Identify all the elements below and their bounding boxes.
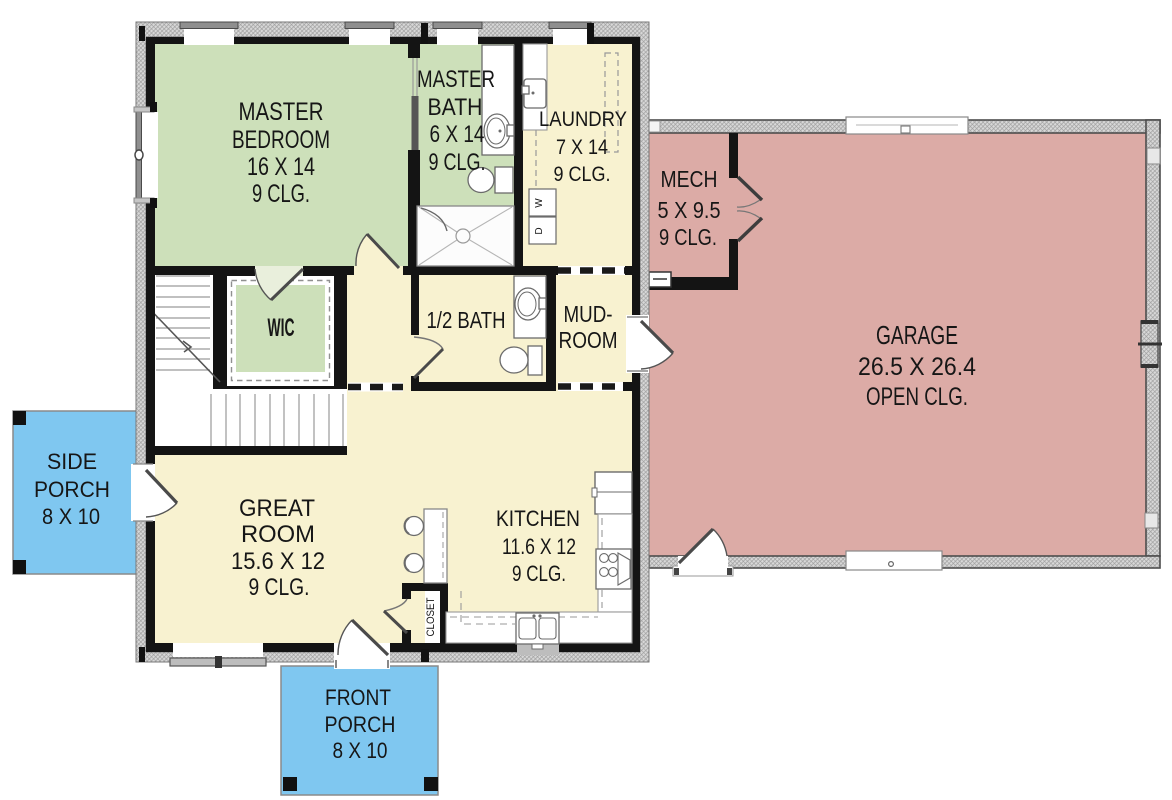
- svg-text:MASTER: MASTER: [417, 66, 495, 93]
- svg-text:9 CLG.: 9 CLG.: [252, 180, 310, 208]
- svg-text:MASTER: MASTER: [239, 98, 324, 126]
- svg-text:9 CLG.: 9 CLG.: [429, 149, 486, 176]
- svg-text:MECH: MECH: [661, 166, 718, 192]
- svg-text:SIDE: SIDE: [47, 449, 97, 474]
- svg-text:11.6 X 12: 11.6 X 12: [502, 534, 576, 559]
- svg-text:BATH: BATH: [428, 94, 483, 121]
- svg-text:7 X 14: 7 X 14: [556, 136, 608, 159]
- svg-text:D: D: [534, 227, 545, 234]
- svg-text:9 CLG.: 9 CLG.: [512, 561, 566, 586]
- svg-text:9 CLG.: 9 CLG.: [554, 163, 611, 186]
- svg-text:KITCHEN: KITCHEN: [496, 506, 580, 531]
- svg-text:6 X 14: 6 X 14: [430, 121, 485, 148]
- svg-text:5 X 9.5: 5 X 9.5: [658, 197, 721, 223]
- svg-text:PORCH: PORCH: [325, 712, 396, 737]
- svg-text:8 X 10: 8 X 10: [333, 738, 388, 763]
- svg-text:WIC: WIC: [268, 314, 295, 342]
- svg-text:ROOM: ROOM: [559, 327, 618, 353]
- svg-text:26.5 X 26.4: 26.5 X 26.4: [858, 353, 976, 381]
- svg-text:GREAT: GREAT: [239, 495, 315, 522]
- svg-text:OPEN CLG.: OPEN CLG.: [866, 383, 968, 411]
- svg-text:LAUNDRY: LAUNDRY: [539, 108, 627, 131]
- svg-text:15.6 X 12: 15.6 X 12: [231, 548, 325, 575]
- svg-text:BEDROOM: BEDROOM: [232, 126, 330, 154]
- svg-text:MUD-: MUD-: [564, 301, 613, 327]
- svg-text:1/2 BATH: 1/2 BATH: [427, 307, 506, 333]
- svg-text:W: W: [534, 198, 545, 208]
- svg-text:PORCH: PORCH: [34, 477, 110, 502]
- svg-text:9 CLG.: 9 CLG.: [249, 574, 310, 601]
- svg-text:FRONT: FRONT: [325, 685, 391, 710]
- svg-text:CLOSET: CLOSET: [425, 597, 437, 636]
- svg-text:8 X 10: 8 X 10: [42, 504, 100, 529]
- svg-text:GARAGE: GARAGE: [876, 320, 958, 350]
- svg-text:9 CLG.: 9 CLG.: [659, 224, 717, 250]
- svg-text:ROOM: ROOM: [241, 521, 315, 548]
- svg-text:16 X 14: 16 X 14: [247, 153, 315, 181]
